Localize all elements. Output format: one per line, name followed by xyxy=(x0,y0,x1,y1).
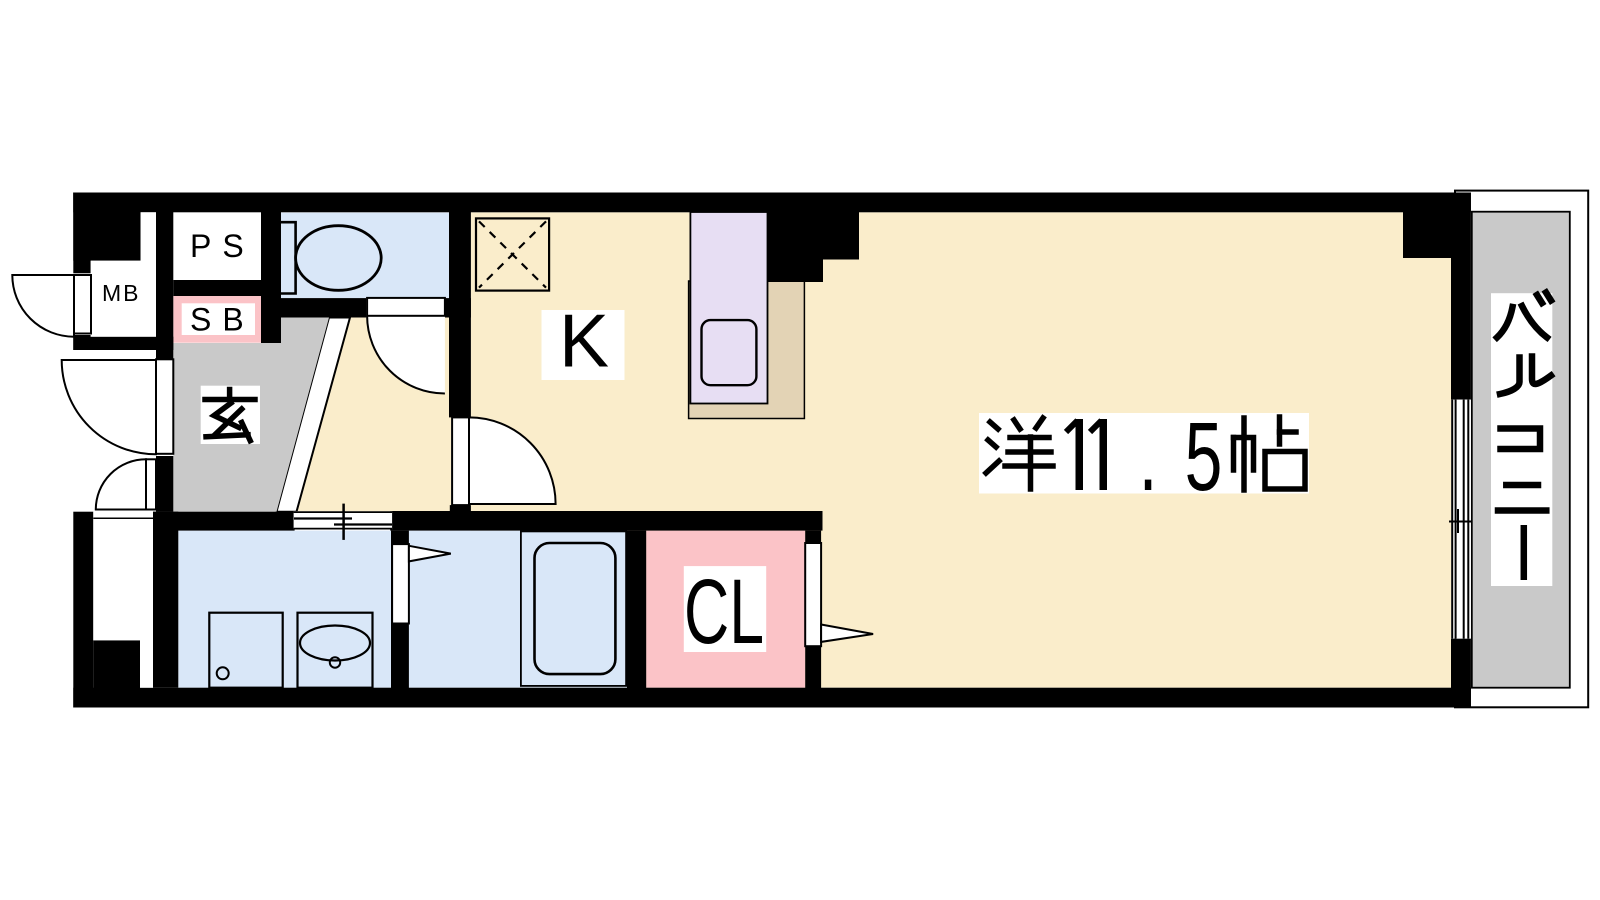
svg-text:PS: PS xyxy=(190,228,255,264)
svg-text:K: K xyxy=(559,299,609,383)
svg-text:SB: SB xyxy=(190,302,255,338)
svg-text:MB: MB xyxy=(102,280,141,306)
svg-text:CL: CL xyxy=(684,561,764,663)
